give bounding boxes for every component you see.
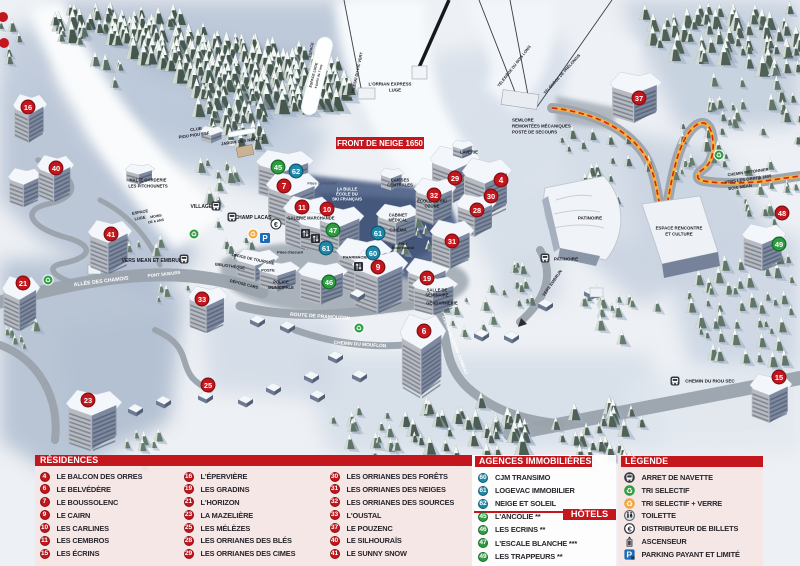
svg-text:25: 25 bbox=[204, 381, 212, 390]
svg-text:L'ORRIAN EXPRESS: L'ORRIAN EXPRESS bbox=[368, 82, 411, 87]
svg-text:FRONT DE NEIGE 1650: FRONT DE NEIGE 1650 bbox=[337, 139, 423, 148]
svg-text:61: 61 bbox=[374, 229, 382, 238]
svg-text:62: 62 bbox=[292, 167, 300, 176]
svg-text:CHEMIN DU RIOU SEC: CHEMIN DU RIOU SEC bbox=[685, 379, 735, 384]
svg-text:30: 30 bbox=[487, 192, 495, 201]
svg-text:♻: ♻ bbox=[191, 230, 197, 239]
svg-text:15: 15 bbox=[775, 373, 783, 382]
svg-text:POLICE: POLICE bbox=[273, 280, 289, 285]
svg-text:32: 32 bbox=[430, 191, 438, 200]
svg-text:33: 33 bbox=[198, 295, 206, 304]
svg-text:46: 46 bbox=[325, 278, 333, 287]
svg-text:CINÉMA: CINÉMA bbox=[389, 228, 407, 233]
svg-text:28: 28 bbox=[473, 206, 481, 215]
svg-text:HALTE GARDERIE: HALTE GARDERIE bbox=[130, 178, 167, 183]
svg-text:École Médical: École Médical bbox=[392, 245, 414, 250]
svg-text:6: 6 bbox=[422, 327, 427, 336]
svg-text:OZONE: OZONE bbox=[425, 204, 440, 209]
svg-text:REMONTÉES MÉCANIQUES: REMONTÉES MÉCANIQUES bbox=[512, 124, 571, 129]
svg-text:11: 11 bbox=[298, 203, 306, 212]
svg-text:SKI FRANÇAIS: SKI FRANÇAIS bbox=[332, 197, 362, 202]
svg-text:16: 16 bbox=[24, 103, 32, 112]
svg-text:♻: ♻ bbox=[625, 499, 632, 508]
svg-text:41: 41 bbox=[107, 230, 115, 239]
svg-text:23: 23 bbox=[84, 396, 92, 405]
svg-text:LES PITCHOUNETS: LES PITCHOUNETS bbox=[128, 184, 168, 189]
svg-text:MUNICIPALE: MUNICIPALE bbox=[268, 285, 294, 290]
svg-text:29: 29 bbox=[451, 174, 459, 183]
svg-text:SÉMINAIRE: SÉMINAIRE bbox=[425, 293, 448, 298]
svg-text:10: 10 bbox=[323, 205, 331, 214]
svg-text:SEMLORE: SEMLORE bbox=[512, 118, 534, 123]
svg-text:49: 49 bbox=[775, 240, 783, 249]
svg-text:♻: ♻ bbox=[625, 486, 632, 495]
svg-text:21: 21 bbox=[19, 279, 27, 288]
svg-text:POSTE: POSTE bbox=[261, 267, 275, 272]
svg-text:POSTE DE SECOURS: POSTE DE SECOURS bbox=[512, 130, 557, 135]
svg-text:♻: ♻ bbox=[716, 151, 722, 160]
svg-text:LUGE: LUGE bbox=[389, 88, 401, 93]
svg-text:♻: ♻ bbox=[250, 230, 256, 239]
svg-text:PATINOIRE: PATINOIRE bbox=[578, 216, 602, 221]
svg-text:€: € bbox=[274, 222, 278, 229]
svg-text:40: 40 bbox=[52, 164, 60, 173]
svg-text:PHARMACIE: PHARMACIE bbox=[343, 254, 368, 259]
svg-text:♻: ♻ bbox=[356, 324, 362, 333]
svg-text:ESPACE RENCONTRE: ESPACE RENCONTRE bbox=[656, 226, 703, 231]
svg-text:48: 48 bbox=[778, 209, 786, 218]
svg-text:4: 4 bbox=[499, 176, 504, 185]
svg-text:PATINOIRE: PATINOIRE bbox=[554, 257, 578, 262]
svg-text:Place du Festival: Place du Festival bbox=[307, 181, 336, 185]
svg-text:47: 47 bbox=[329, 226, 337, 235]
svg-text:60: 60 bbox=[369, 249, 377, 258]
svg-text:P: P bbox=[262, 234, 268, 243]
svg-text:37: 37 bbox=[635, 94, 643, 103]
svg-text:31: 31 bbox=[448, 237, 456, 246]
svg-text:ET CULTURE: ET CULTURE bbox=[665, 232, 693, 237]
svg-text:MÉDICAL: MÉDICAL bbox=[388, 218, 408, 223]
svg-text:45: 45 bbox=[274, 163, 282, 172]
svg-text:CENTRALES: CENTRALES bbox=[387, 183, 413, 188]
svg-text:GENDARMERIE: GENDARMERIE bbox=[426, 301, 458, 306]
svg-text:19: 19 bbox=[423, 274, 431, 283]
svg-text:♻: ♻ bbox=[45, 276, 51, 285]
svg-text:VERS MEAN ET EMBRUN: VERS MEAN ET EMBRUN bbox=[122, 258, 183, 264]
svg-text:61: 61 bbox=[322, 244, 330, 253]
svg-text:LAVERIE: LAVERIE bbox=[460, 150, 478, 155]
svg-text:7: 7 bbox=[282, 182, 287, 191]
svg-text:9: 9 bbox=[376, 263, 381, 272]
svg-text:CHAMP LACAS: CHAMP LACAS bbox=[235, 215, 273, 221]
svg-text:Place d'accueil: Place d'accueil bbox=[277, 250, 303, 254]
